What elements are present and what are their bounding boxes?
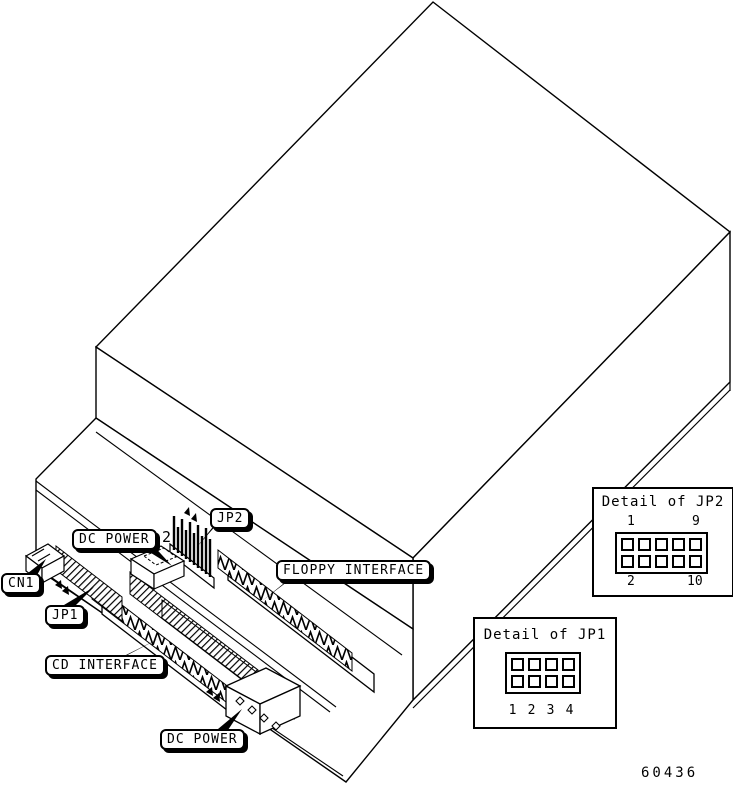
detail-jp2-pin1-label: 1 [627,514,635,529]
pin-square [511,658,524,671]
pin-square [562,675,575,688]
pin-square [621,538,634,551]
callout-cn1: CN1 [1,573,41,594]
figure-canvas: JP2 DC POWER CN1 JP1 FLOPPY INTERFACE CD… [0,0,733,802]
figure-number: 60436 [641,765,698,781]
pin-square [545,658,558,671]
callout-floppy-interface-label: FLOPPY INTERFACE [283,563,424,578]
callout-jp1-label: JP1 [52,608,78,623]
pin-square [528,658,541,671]
detail-jp1-pin-labels: 1 2 3 4 [503,703,579,718]
callout-jp2: JP2 [210,508,250,529]
detail-jp1-pin-grid [505,652,581,694]
callout-cd-interface: CD INTERFACE [45,655,165,676]
callout-cd-interface-label: CD INTERFACE [52,658,158,673]
pin-square [511,675,524,688]
drive-isometric-drawing [0,0,733,802]
pin-square [689,538,702,551]
pin-square [655,555,668,568]
callout-jp2-label: JP2 [217,511,243,526]
jp2-pin2-marker: 2 [162,528,171,546]
callout-cn1-label: CN1 [8,576,34,591]
pin-square [672,538,685,551]
pin-square [638,538,651,551]
detail-jp1-pin3-label: 3 [547,703,555,718]
callout-floppy-interface: FLOPPY INTERFACE [276,560,431,581]
detail-box-jp1: Detail of JP1 1 2 3 4 [473,617,617,729]
pin-square [638,555,651,568]
callout-jp1: JP1 [45,605,85,626]
pin-square [562,658,575,671]
pin-square [621,555,634,568]
detail-box-jp2: Detail of JP2 1 9 2 10 [592,487,733,597]
detail-jp2-pin10-label: 10 [687,574,703,589]
detail-jp2-pin-grid [615,532,708,574]
detail-jp2-pin2-label: 2 [627,574,635,589]
detail-jp1-pin2-label: 2 [528,703,536,718]
pin-square [528,675,541,688]
pin-square [655,538,668,551]
detail-jp2-pin9-label: 9 [692,514,700,529]
detail-jp1-pin4-label: 4 [566,703,574,718]
detail-jp1-title: Detail of JP1 [475,627,615,643]
pin-square [545,675,558,688]
callout-dc-power-top: DC POWER [72,529,157,550]
callout-dc-power-top-label: DC POWER [79,532,150,547]
detail-jp2-title: Detail of JP2 [594,494,732,510]
pin-square [689,555,702,568]
detail-jp1-pin1-label: 1 [509,703,517,718]
callout-dc-power-bottom-label: DC POWER [167,732,238,747]
pin-square [672,555,685,568]
callout-dc-power-bottom: DC POWER [160,729,245,750]
